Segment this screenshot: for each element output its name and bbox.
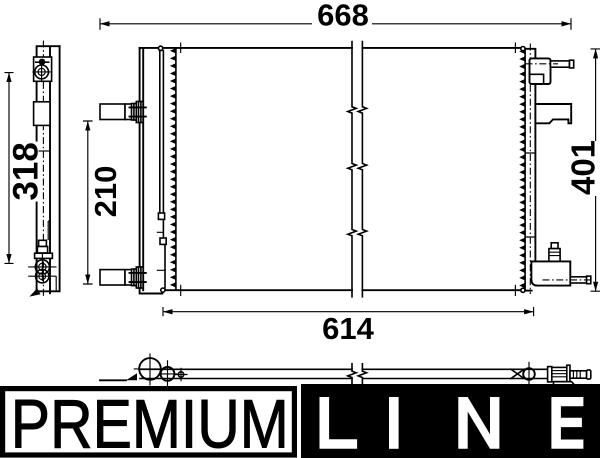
svg-text:668: 668	[317, 0, 369, 33]
svg-text:PREMIUM: PREMIUM	[11, 385, 289, 458]
svg-text:614: 614	[322, 311, 374, 346]
svg-text:401: 401	[565, 140, 600, 195]
svg-text:318: 318	[6, 142, 45, 200]
svg-text:210: 210	[88, 166, 123, 218]
